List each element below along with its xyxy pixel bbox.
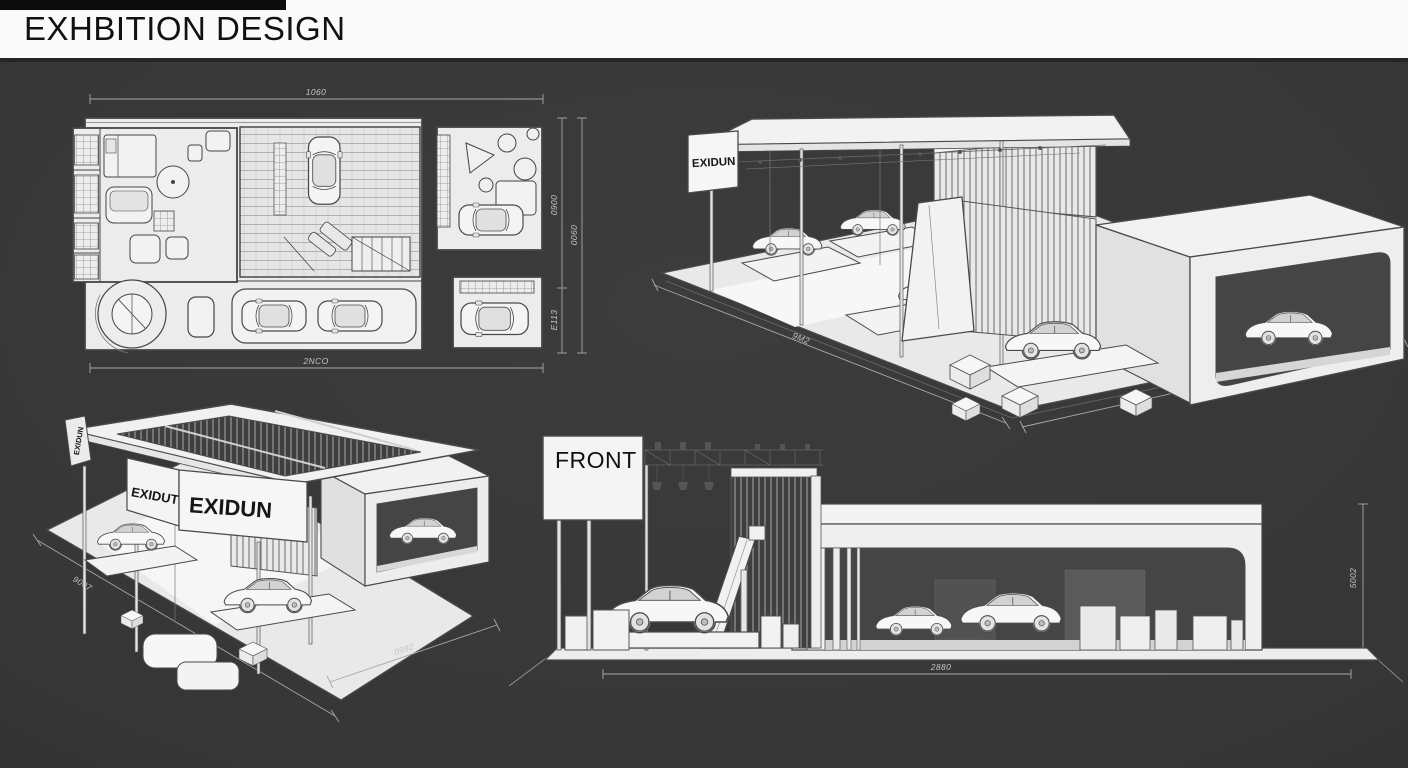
- mid-volume: [902, 197, 1096, 343]
- floor-plan-drawing: 1060 2NCO 0900 E113 0060: [70, 85, 600, 385]
- dimension-label: 9007: [71, 574, 94, 593]
- top-accent-bar: [0, 0, 286, 10]
- shelf-unit: [75, 223, 99, 249]
- right-box: [792, 504, 1262, 650]
- car-icon: [306, 137, 342, 204]
- dimension-label: E113: [549, 310, 559, 331]
- chair-top: [166, 237, 188, 259]
- dimension-label: 2880: [930, 662, 952, 672]
- shelf-unit: [75, 255, 99, 279]
- canopy-roof: [700, 115, 1130, 152]
- car-icon: [461, 301, 528, 337]
- exhibition-design-board: EXHBITION DESIGN 1060 2NCO 0900 E113 006…: [0, 0, 1408, 768]
- booth-logo-text: EXIDUN: [692, 156, 736, 170]
- car-icon: [459, 203, 523, 237]
- car-icon: [318, 299, 382, 333]
- chair-top: [130, 235, 160, 263]
- logo-sign-panel: EXIDUN: [688, 131, 738, 193]
- dimension-label: 0900: [549, 195, 559, 216]
- desk-box: [952, 397, 980, 421]
- iso-view-top-right: 9M2 1007: [650, 105, 1408, 435]
- iso-view-bottom-left: 9007 0992 EXIDUN EXIDUT: [25, 390, 510, 725]
- dimension-label: 9M2: [791, 330, 811, 346]
- right-box: [1096, 195, 1404, 405]
- header-divider: [0, 58, 1408, 62]
- dimension-label: 1060: [306, 87, 327, 97]
- dimension-label: 2NCO: [302, 356, 328, 366]
- desk-box: [121, 610, 143, 629]
- kiosk: [188, 297, 214, 337]
- plan-body: [73, 118, 542, 353]
- dimension-label: 5002: [1348, 568, 1358, 589]
- car-icon: [242, 299, 306, 333]
- view-label: FRONT: [555, 447, 637, 473]
- page-title: EXHBITION DESIGN: [24, 10, 346, 48]
- shelf-unit: [75, 175, 99, 213]
- front-sign: FRONT: [543, 436, 643, 650]
- shelf-unit: [75, 135, 99, 165]
- desk-box: [1120, 389, 1152, 416]
- dimension-label: 0060: [569, 225, 579, 246]
- front-elevation-drawing: 2880 5002: [505, 420, 1405, 720]
